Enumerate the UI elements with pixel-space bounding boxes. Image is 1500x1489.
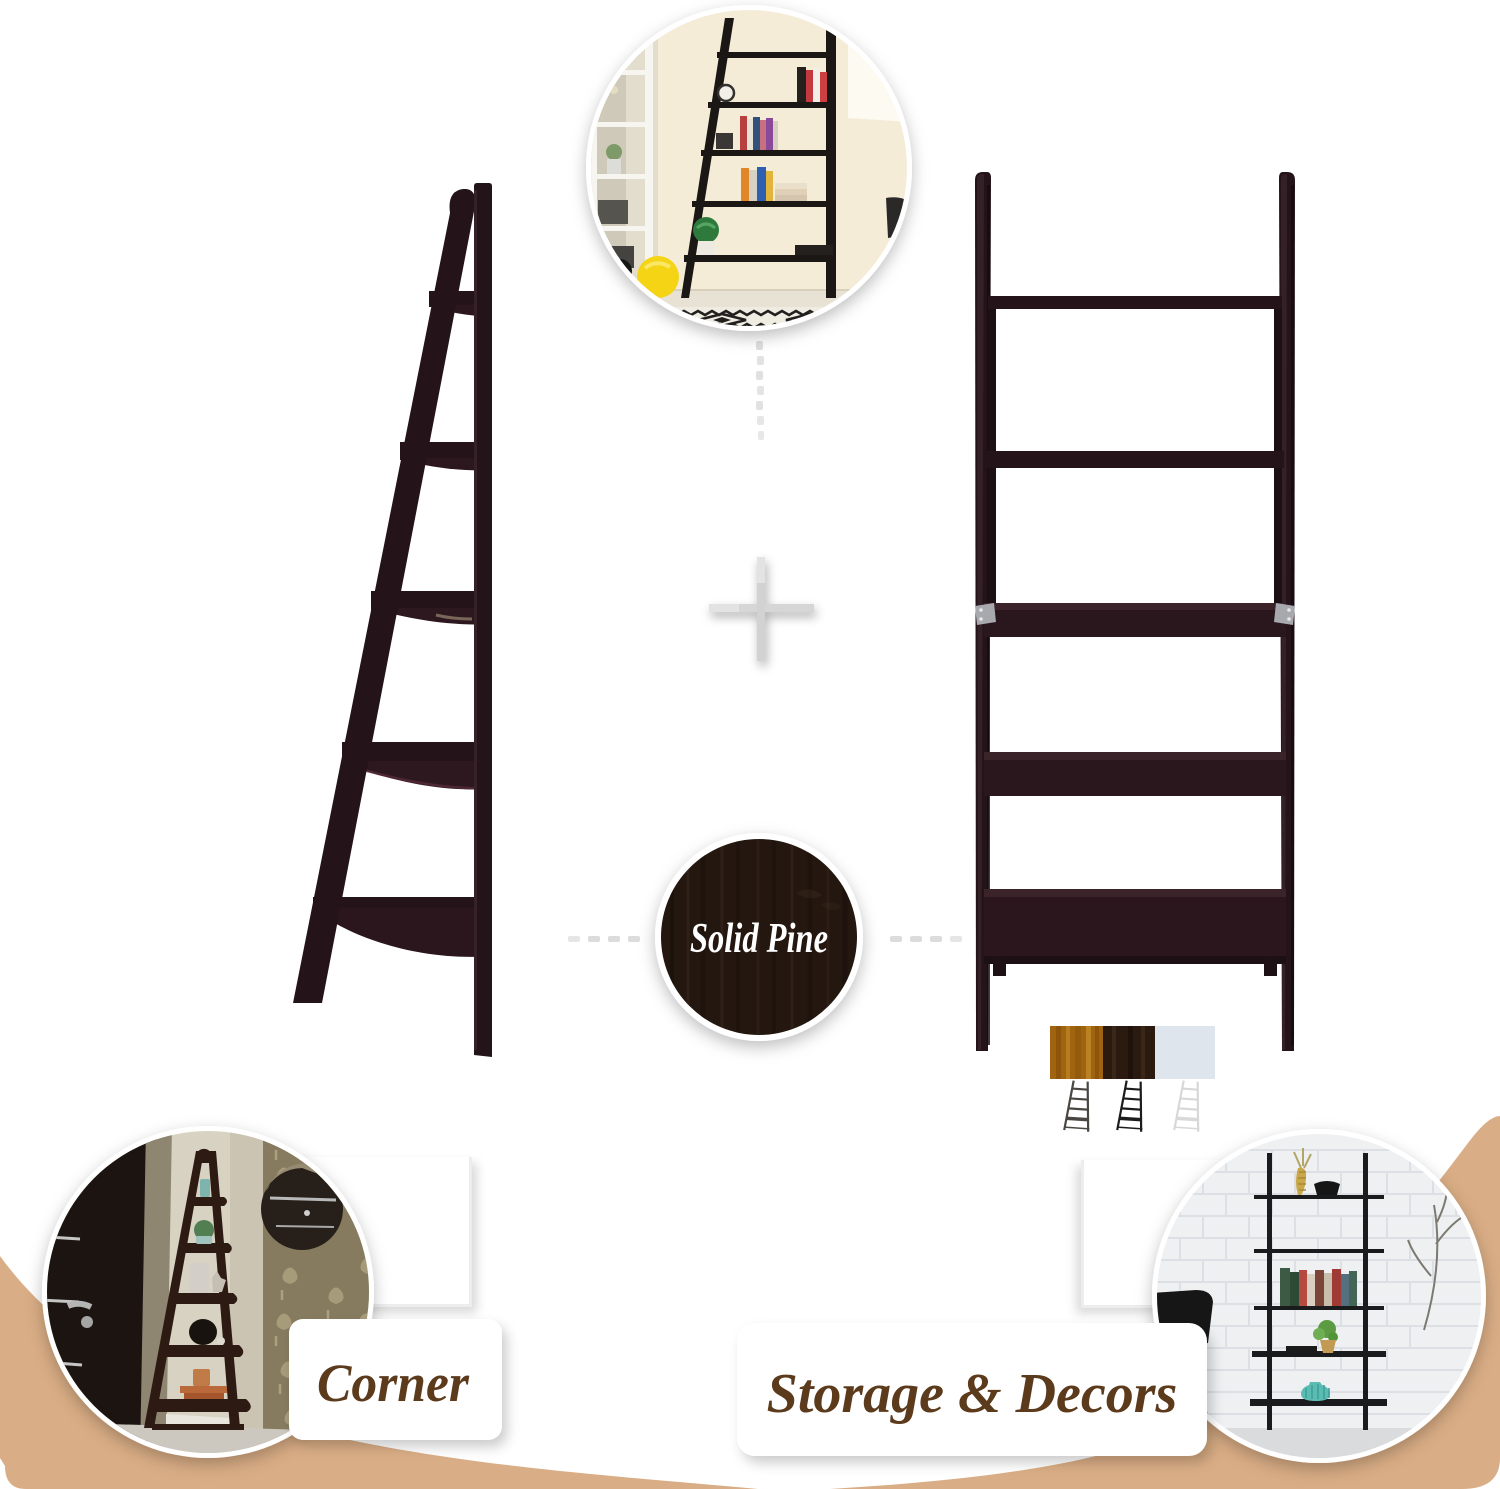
svg-text:Storage & Decors: Storage & Decors <box>767 1363 1178 1425</box>
svg-text:Corner: Corner <box>317 1353 470 1413</box>
svg-text:Solid Pine: Solid Pine <box>690 916 828 962</box>
